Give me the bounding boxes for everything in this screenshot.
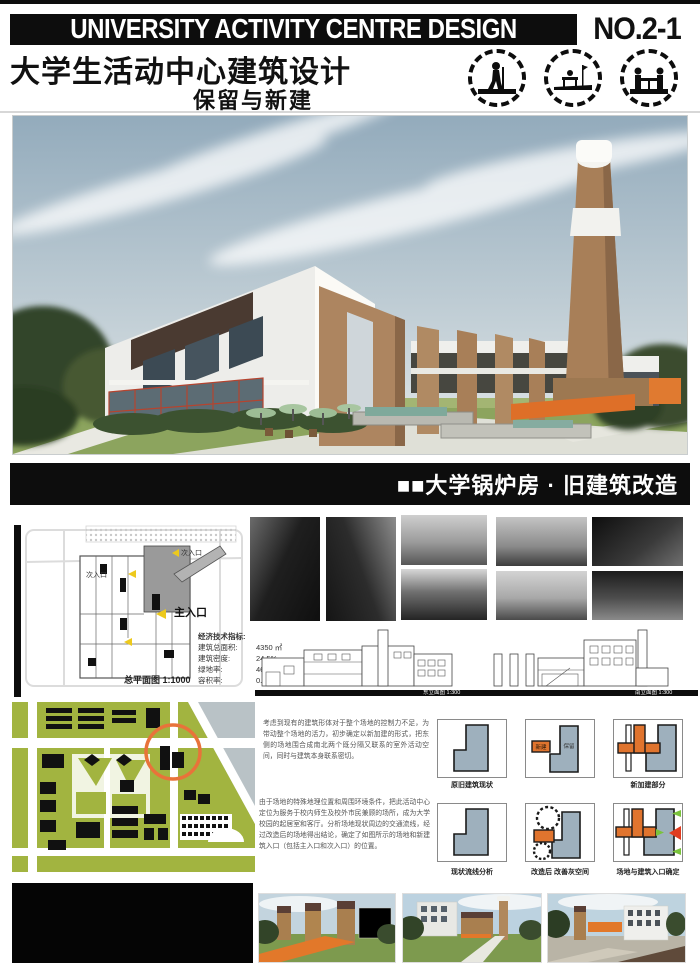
photo-boiler-stairs (250, 517, 320, 621)
photo-site-trees (496, 517, 587, 566)
photo-dark-interior (592, 517, 683, 566)
tag-new: 新建 (535, 743, 547, 751)
design-paragraph-1: 考虑到现有的建筑形体对于整个场地的控制力不足，为带动整个场地的活力，初步确定以新… (263, 718, 429, 762)
figure-activity-stamp-icon (468, 49, 526, 107)
photo-rooftop (401, 569, 487, 620)
campus-location-map (12, 702, 255, 872)
title-bar: UNIVERSITY ACTIVITY CENTRE DESIGN (10, 14, 577, 45)
photo-building-ruins (401, 515, 487, 565)
elevation-caption-south: 南立面图 1:300 (635, 690, 672, 696)
figure-table-stamp-icon (620, 49, 678, 107)
diagram-circulation (437, 803, 507, 862)
diagram-entrances (613, 803, 683, 862)
yellow-arrow-icon (172, 549, 179, 557)
render-thumbnail-plaza (547, 893, 686, 963)
activity-stamps (468, 49, 696, 111)
site-plan-caption: 总平面图 1:1000 (124, 673, 191, 686)
page-title: UNIVERSITY ACTIVITY CENTRE DESIGN (70, 13, 516, 45)
stamp-figure-3 (628, 57, 670, 99)
diagram-caption: 新加建部分 (603, 780, 693, 790)
diagram-addition (613, 719, 683, 778)
stamp-figure-2 (552, 57, 594, 99)
black-divider-block (12, 883, 253, 963)
section-banner-label: ■■大学锅炉房 · 旧建筑改造 (397, 468, 678, 500)
elevation-ground-bar: 东立面图 1:300 南立面图 1:300 (255, 690, 698, 696)
main-perspective-render (12, 115, 688, 455)
photo-interior-columns (592, 571, 683, 620)
header-divider (0, 111, 700, 113)
design-paragraph-2: 由于场地的特殊地理位置和周围环境条件，把此活动中心定位为服务于校内师生及校外市民… (259, 797, 430, 852)
sheet-number: NO.2-1 (578, 10, 696, 47)
main-entrance-label: 主入口 (174, 604, 207, 620)
photo-interior-beams (326, 517, 396, 621)
diagram-caption: 改造后 改善灰空间 (515, 867, 605, 877)
elevation-drawing-south (490, 628, 675, 690)
diagram-caption: 原旧建筑现状 (427, 780, 517, 790)
top-rule (0, 0, 700, 4)
elevation-caption-east: 东立面图 1:300 (423, 690, 460, 696)
diagram-caption: 现状流线分析 (427, 867, 517, 877)
diagram-new-vs-keep: 新建 保留 (525, 719, 595, 778)
figure-bench-stamp-icon (544, 49, 602, 107)
section-banner: ■■大学锅炉房 · 旧建筑改造 (10, 463, 690, 505)
diagram-existing-building (437, 719, 507, 778)
render-thumbnail-courtyard (258, 893, 396, 963)
secondary-entrance-label-top: 次入口 (172, 548, 202, 558)
render-illustration (13, 116, 687, 454)
secondary-entrance-label: 次入口 (86, 570, 107, 580)
render-thumbnail-chimney-lawn (402, 893, 542, 963)
left-vertical-rule (14, 525, 21, 697)
elevation-drawing-east (258, 628, 458, 690)
stamp-figure-1 (476, 57, 518, 99)
presentation-board: UNIVERSITY ACTIVITY CENTRE DESIGN NO.2-1… (0, 0, 700, 980)
diagram-caption: 场地与建筑入口确定 (603, 867, 693, 877)
tag-keep: 保留 (563, 742, 575, 750)
photo-white-building (496, 571, 587, 620)
diagram-gray-space (525, 803, 595, 862)
